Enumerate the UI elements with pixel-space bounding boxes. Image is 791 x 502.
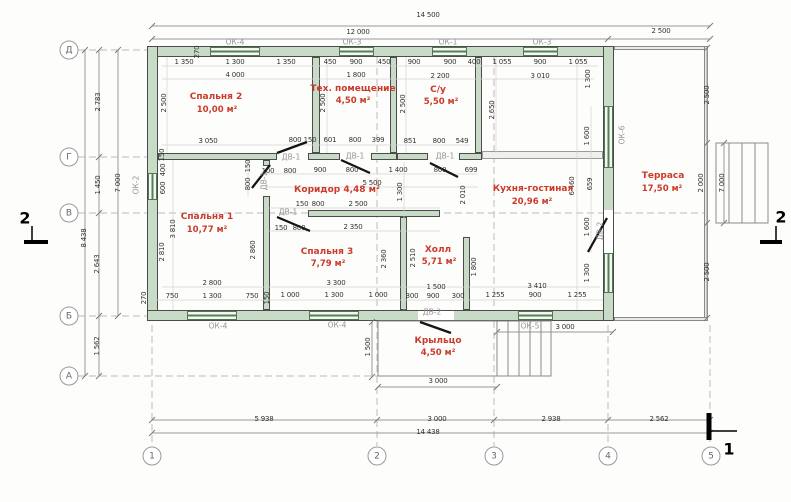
dimension-label: 1 500	[426, 283, 445, 291]
dimension-label: 3 810	[169, 219, 177, 238]
dimension-label: 300	[452, 292, 465, 300]
dimension-label: 1 300	[584, 69, 592, 88]
dimension-label: 800	[284, 167, 297, 175]
dimension-label: 150	[158, 149, 166, 162]
room-area-label: 17,50 м²	[642, 184, 683, 194]
room-label: Кухня-гостиная	[493, 184, 574, 194]
dimension-label: 1 600	[583, 126, 591, 145]
dimension-label: 800	[289, 136, 302, 144]
dimension-label: 1 000	[280, 291, 299, 299]
dimension-label: 900	[408, 58, 421, 66]
dimension-label: 3 000	[555, 323, 574, 331]
dimension-label: 2 500	[703, 85, 711, 104]
dimension-label: 2 000	[697, 173, 705, 192]
dimension-label: 2 350	[343, 223, 362, 231]
dimension-label: 450	[378, 58, 391, 66]
dimension-label: 5 938	[254, 415, 273, 423]
dimension-label: 1 350	[276, 58, 295, 66]
dimension-label: 150	[275, 224, 288, 232]
dimension-label: 1 300	[396, 182, 404, 201]
dimension-label: 2 500	[703, 262, 711, 281]
floor-plan: 14 50012 0002 5001 3501 3001 35045090045…	[0, 0, 791, 502]
dimension-label: 1 562	[93, 336, 101, 355]
dimension-label: 3 000	[427, 415, 446, 423]
dimension-label: 2 643	[93, 254, 101, 273]
dimension-label: 800	[293, 224, 306, 232]
dimension-label: 1 055	[492, 58, 511, 66]
dimension-label: 1 450	[94, 175, 102, 194]
room-area-label: 5,71 м²	[422, 257, 457, 267]
dimension-label: 12 000	[346, 28, 369, 36]
fixture-label: ОК-4	[328, 321, 347, 330]
dimension-label: 900	[534, 58, 547, 66]
dimension-label: 400	[159, 164, 167, 177]
dimension-label: 2 500	[348, 200, 367, 208]
dimension-label: 1 255	[485, 291, 504, 299]
dimension-label: 1 800	[470, 257, 478, 276]
axis-circle-col: 3	[485, 447, 504, 466]
dimension-label: 3 000	[428, 377, 447, 385]
dimension-label: 3 010	[530, 72, 549, 80]
axis-circle-col: 2	[368, 447, 387, 466]
dimension-label: 2 360	[380, 249, 388, 268]
axis-circle-row: Г	[60, 148, 79, 167]
dimension-label: 2 500	[160, 93, 168, 112]
room-area-label: 5,50 м²	[424, 97, 459, 107]
fixture-label: ДВ-1	[279, 208, 297, 217]
dimension-label: 300	[406, 292, 419, 300]
axis-circle-col: 5	[702, 447, 721, 466]
dimension-label: 7 000	[114, 173, 122, 192]
fixture-label: ОК-4	[226, 38, 245, 47]
room-label: Спальня 3	[301, 247, 354, 257]
dimension-label: 800	[433, 137, 446, 145]
dimension-label: 4 000	[225, 71, 244, 79]
axis-circle-col: 4	[599, 447, 618, 466]
dimension-label: 450	[324, 58, 337, 66]
fixture-label: ОК-1	[439, 38, 458, 47]
dimension-label: 800	[346, 166, 359, 174]
dimension-label: 1 800	[346, 71, 365, 79]
room-area-label: 10,77 м²	[187, 225, 228, 235]
dimension-label: 851	[404, 137, 417, 145]
dimension-label: 7 000	[718, 173, 726, 192]
room-label: С/у	[430, 85, 446, 95]
dimension-label: 900	[314, 166, 327, 174]
dimension-label: 659	[586, 178, 594, 191]
axis-circle-col: 1	[143, 447, 162, 466]
dimension-label: 1 255	[567, 291, 586, 299]
dimension-label: 150	[296, 200, 309, 208]
section-label: 2	[775, 208, 786, 227]
dimension-label: 2 860	[249, 240, 257, 259]
room-label: Спальня 2	[190, 92, 243, 102]
dimension-label: 600	[159, 182, 167, 195]
dimension-label: 1 300	[202, 292, 221, 300]
dimension-label: 2 938	[541, 415, 560, 423]
axis-circle-row: А	[60, 367, 79, 386]
dimension-label: 150	[304, 136, 317, 144]
plan-linework	[0, 0, 791, 502]
dimension-label: 800	[434, 166, 447, 174]
dimension-label: 601	[324, 136, 337, 144]
dimension-label: 1 055	[568, 58, 587, 66]
dimension-label: 2 200	[430, 72, 449, 80]
fixture-label: ДВ-2	[596, 222, 605, 240]
dimension-label: 2 562	[649, 415, 668, 423]
axis-circle-row: Д	[60, 41, 79, 60]
dimension-label: 800	[349, 136, 362, 144]
dimension-label: 3 410	[527, 282, 546, 290]
fixture-label: ДВ-2	[423, 308, 441, 317]
dimension-label: 400	[468, 58, 481, 66]
axis-circle-row: В	[60, 204, 79, 223]
dimension-label: 1 300	[225, 58, 244, 66]
dimension-label: 2 810	[158, 242, 166, 261]
dimension-label: 2 510	[409, 248, 417, 267]
dimension-label: 270	[193, 46, 201, 59]
dimension-label: 2 010	[459, 185, 467, 204]
fixture-label: ОК-3	[343, 38, 362, 47]
dimension-label: 1 350	[174, 58, 193, 66]
room-area-label: 4,50 м²	[336, 96, 371, 106]
section-label: 2	[19, 209, 30, 228]
fixture-label: ДВ-1	[260, 172, 269, 190]
dimension-label: 1 400	[388, 166, 407, 174]
fixture-label: ОК-3	[533, 38, 552, 47]
fixture-label: ДВ-1	[436, 152, 454, 161]
dimension-label: 1 500	[364, 337, 372, 356]
dimension-label: 549	[456, 137, 469, 145]
dimension-label: 1 600	[583, 217, 591, 236]
dimension-label: 8 438	[80, 228, 88, 247]
dimension-label: 900	[427, 292, 440, 300]
fixture-label: ОК-4	[209, 322, 228, 331]
room-label: Спальня 1	[181, 212, 234, 222]
dimension-label: 2 500	[319, 93, 327, 112]
dimension-label: 2 650	[488, 100, 496, 119]
dimension-label: 2 783	[94, 92, 102, 111]
axis-circle-row: Б	[60, 307, 79, 326]
room-area-label: 20,96 м²	[512, 197, 553, 207]
dimension-label: 1 300	[324, 291, 343, 299]
room-label: Тех. помещение	[310, 84, 395, 94]
dimension-label: 150	[263, 292, 271, 305]
dimension-label: 14 438	[416, 428, 439, 436]
dimension-label: 2 500	[399, 94, 407, 113]
dimension-label: 1 000	[368, 291, 387, 299]
fixture-label: ОК-6	[618, 126, 627, 145]
dimension-label: 1 300	[583, 263, 591, 282]
dimension-label: 2 800	[202, 279, 221, 287]
dimension-label: 750	[246, 292, 259, 300]
room-label: Коридор 4,48 м²	[294, 185, 380, 195]
dimension-label: 150	[244, 160, 252, 173]
room-label: Крыльцо	[414, 336, 461, 346]
dimension-label: 3 300	[326, 279, 345, 287]
room-label: Терраса	[642, 171, 685, 181]
room-area-label: 4,50 м²	[421, 348, 456, 358]
room-label: Холл	[425, 245, 451, 255]
dimension-label: 900	[350, 58, 363, 66]
dimension-label: 699	[465, 166, 478, 174]
dimension-label: 800	[244, 178, 252, 191]
dimension-label: 900	[444, 58, 457, 66]
dimension-label: 3 050	[198, 137, 217, 145]
room-area-label: 7,79 м²	[311, 259, 346, 269]
dimension-label: 14 500	[416, 11, 439, 19]
dimension-label: 800	[312, 200, 325, 208]
fixture-label: ДВ-1	[346, 152, 364, 161]
room-area-label: 10,00 м²	[197, 105, 238, 115]
fixture-label: ОК-2	[132, 176, 141, 195]
fixture-label: ОК-5	[521, 322, 540, 331]
dimension-label: 900	[529, 291, 542, 299]
section-label: 1	[723, 440, 734, 459]
dimension-label: 2 500	[651, 27, 670, 35]
fixture-label: ДВ-1	[282, 153, 300, 162]
dimension-label: 750	[166, 292, 179, 300]
dimension-label: 399	[372, 136, 385, 144]
dimension-label: 270	[140, 292, 148, 305]
